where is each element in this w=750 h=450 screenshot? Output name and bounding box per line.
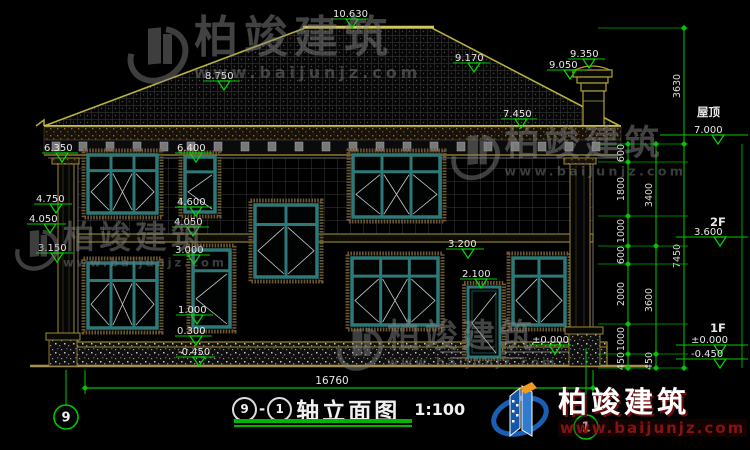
brand-logo: 柏竣建筑 www.baijunjz.com — [490, 378, 747, 446]
dimension-value: 450 — [616, 352, 627, 370]
dentil — [214, 142, 222, 151]
elevation-label: 7.000 — [694, 125, 723, 136]
roof — [36, 27, 620, 126]
elevation-label: 9.350 — [570, 49, 599, 60]
title-underline — [234, 425, 412, 427]
elevation-label: ±0.000 — [691, 335, 728, 346]
dentil — [322, 142, 330, 151]
elevation-label: 4.600 — [177, 197, 206, 208]
window — [84, 151, 162, 218]
elevation-label: 6.350 — [44, 143, 73, 154]
elevation-label: -0.450 — [178, 347, 210, 358]
dentil — [376, 142, 384, 151]
dentil — [511, 142, 519, 151]
dentil — [79, 142, 87, 151]
window — [189, 246, 235, 332]
dentil — [484, 142, 492, 151]
level2-label: 2F — [710, 215, 726, 229]
elevation-label: 10.630 — [333, 9, 368, 20]
dimension-value: 3630 — [672, 74, 683, 98]
elevation-label: 7.450 — [503, 109, 532, 120]
elevation-label: 3.200 — [448, 239, 477, 250]
dimension-value: 450 — [644, 352, 655, 370]
dimension-value: 1800 — [616, 177, 627, 201]
dentil — [565, 142, 573, 151]
elevation-label: -0.450 — [691, 349, 723, 360]
grid-bubble-left: 9 — [54, 370, 78, 429]
title-axis-end: 1 — [267, 397, 292, 422]
dimension-value: 7450 — [672, 244, 683, 268]
elevation-label: 0.300 — [177, 326, 206, 337]
title-separator: - — [259, 400, 265, 418]
brand-logo-icon — [490, 378, 552, 446]
dentil — [538, 142, 546, 151]
elevation-marker-right_700: 7.000 — [660, 125, 748, 144]
dentil — [241, 142, 249, 151]
dimensions-group: 6001800100060020001000450340036004503630… — [598, 25, 742, 371]
roof-label: 屋顶 — [697, 105, 720, 119]
elevation-label: 9.050 — [549, 60, 578, 71]
dimension-value: 1000 — [616, 327, 627, 351]
window — [84, 259, 162, 333]
cad-viewport: 6001800100060020001000450340036004503630… — [0, 0, 750, 450]
dimension-value: 1000 — [616, 219, 627, 243]
dentil — [295, 142, 303, 151]
window — [251, 201, 322, 282]
elevation-marker-ridge: 10.630 — [331, 9, 368, 28]
elevation-label: 9.170 — [455, 53, 484, 64]
window — [349, 151, 445, 222]
eave — [44, 126, 621, 158]
dimension-value: 600 — [616, 144, 627, 162]
dentil — [160, 142, 168, 151]
brand-name: 柏竣建筑 — [558, 387, 747, 417]
grid-bubble-left-label: 9 — [61, 411, 70, 426]
window — [509, 254, 570, 330]
elevation-label: 8.750 — [205, 71, 234, 82]
dimension-value: 3400 — [644, 183, 655, 207]
plinth — [64, 342, 607, 366]
elevation-label: 4.050 — [29, 214, 58, 225]
column-right — [564, 158, 603, 366]
elevation-label: 4.050 — [174, 217, 203, 228]
dentil — [592, 142, 600, 151]
dimension-value: 3600 — [644, 288, 655, 312]
window — [348, 254, 443, 330]
elevation-label: 3.150 — [38, 243, 67, 254]
elevation-label: ±0.000 — [532, 335, 569, 346]
dimension-value: 2000 — [616, 282, 627, 306]
column-left — [46, 158, 80, 366]
bottom-dimension-value: 16760 — [315, 375, 348, 387]
level1-label: 1F — [710, 321, 726, 335]
title-underline — [234, 419, 412, 423]
elevation-label: 2.100 — [462, 269, 491, 280]
entry-door — [464, 283, 504, 359]
dentil — [457, 142, 465, 151]
elevation-label: 3.000 — [175, 245, 204, 256]
dimension-value: 600 — [616, 246, 627, 264]
brand-url: www.baijunjz.com — [558, 419, 747, 437]
title-axis-start: 9 — [232, 397, 257, 422]
elevation-label: 1.000 — [178, 305, 207, 316]
elevation-label: 6.400 — [177, 143, 206, 154]
elevation-marker-right_360: 3.600 — [676, 227, 748, 246]
elevation-label: 4.750 — [36, 194, 65, 205]
dentil — [268, 142, 276, 151]
drawing-scale: 1:100 — [414, 400, 465, 419]
elevation-marker-right_neg045: -0.450 — [676, 349, 748, 368]
